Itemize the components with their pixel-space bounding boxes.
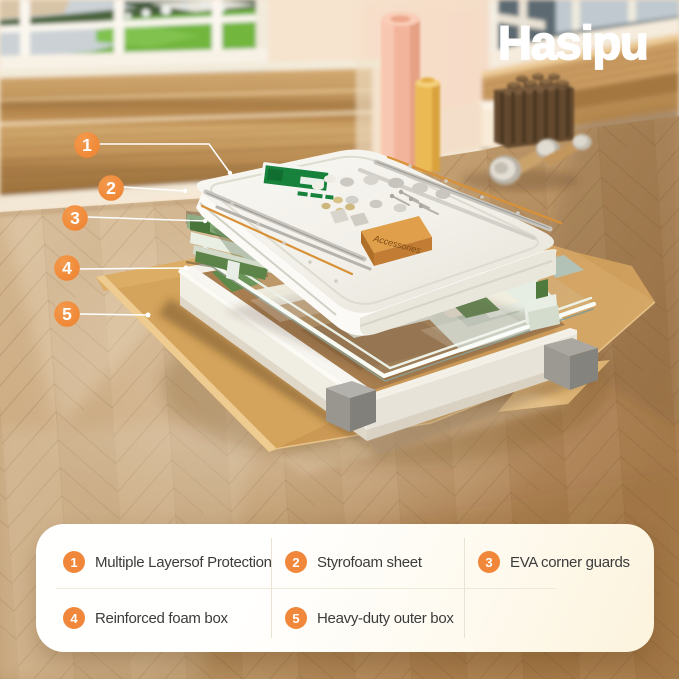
svg-text:1: 1 [82, 135, 92, 155]
svg-text:3: 3 [70, 208, 80, 228]
svg-text:5: 5 [62, 304, 72, 324]
svg-text:4: 4 [62, 258, 72, 278]
svg-text:2: 2 [106, 178, 116, 198]
